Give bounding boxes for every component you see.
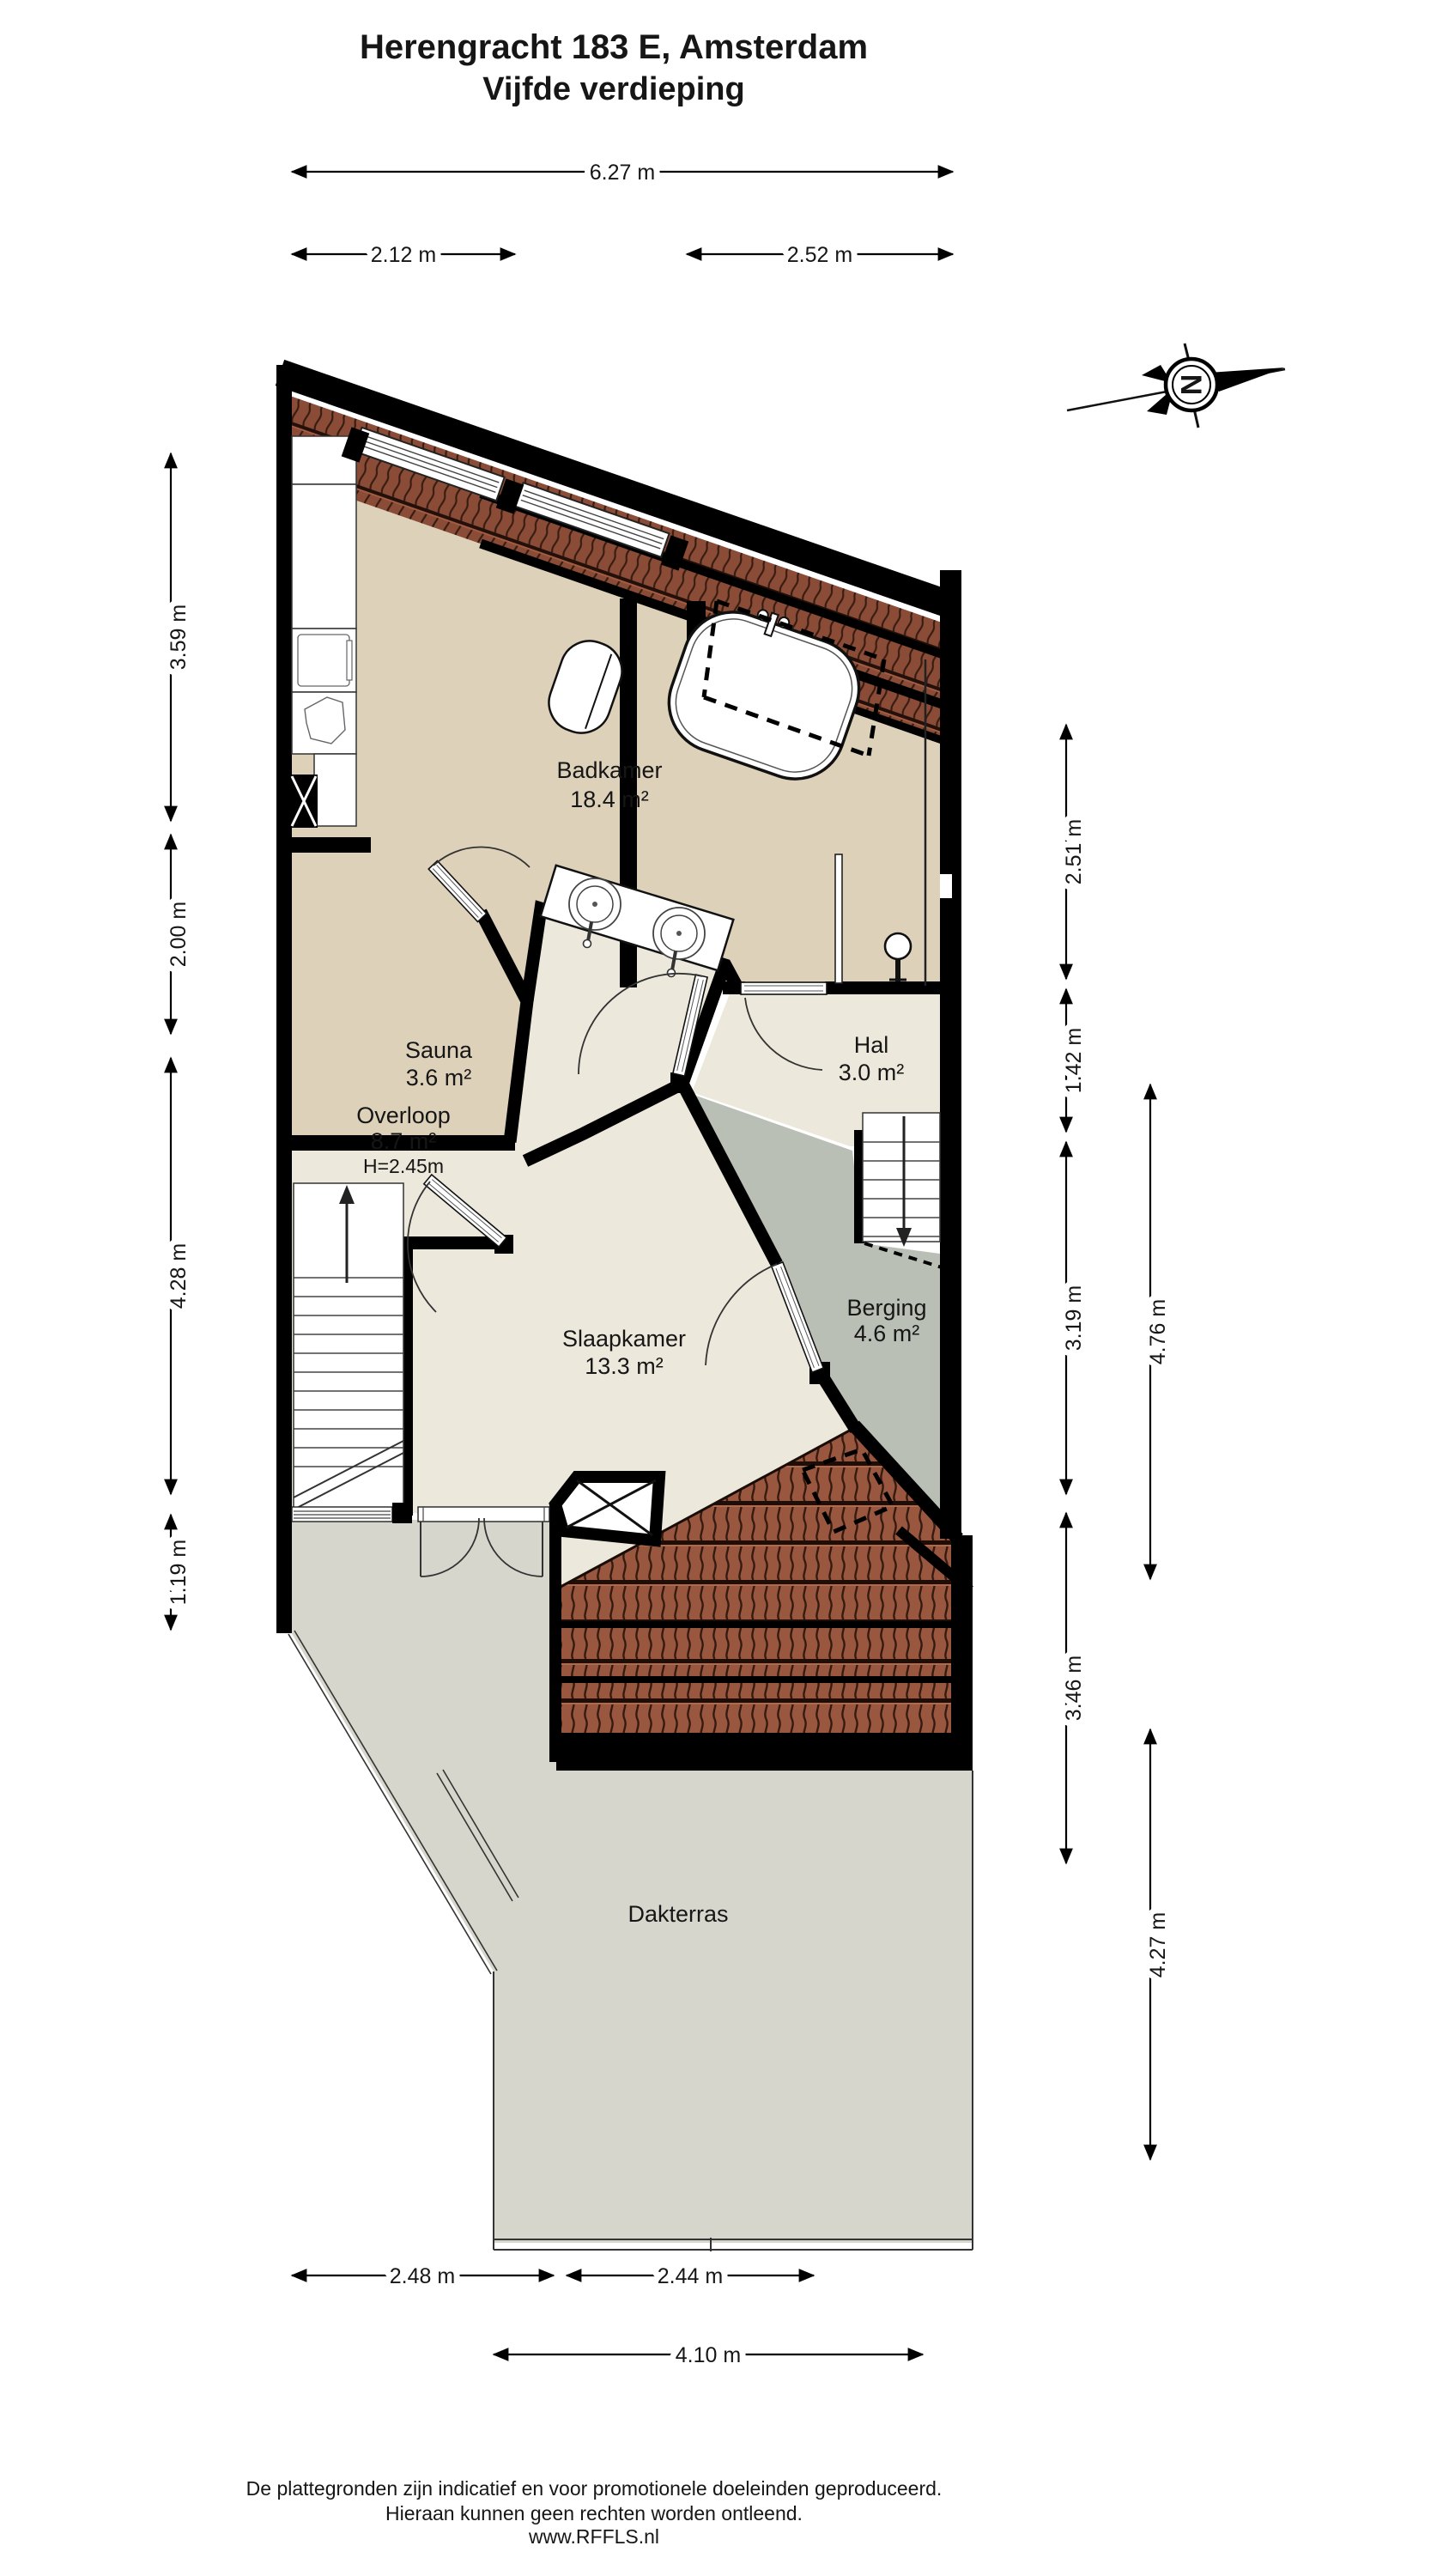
wall-slaapkamer-terrace — [549, 1503, 561, 1762]
page-title: Herengracht 183 E, Amsterdam — [360, 28, 868, 66]
label-sauna-area: 3.6 m² — [406, 1065, 472, 1091]
footer-line3: www.RFFLS.nl — [528, 2525, 659, 2548]
footer-line2: Hieraan kunnen geen rechten worden ontle… — [385, 2502, 803, 2524]
svg-text:4.10 m: 4.10 m — [676, 2343, 741, 2367]
dim-left-column: 3.59 m 2.00 m 4.28 m 1.19 m — [167, 453, 191, 1630]
wall-niche — [940, 874, 952, 898]
page-subtitle: Vijfde verdieping — [482, 71, 744, 107]
stairs-up — [294, 1183, 403, 1510]
terrace-window — [292, 1507, 392, 1522]
svg-text:2.51 m: 2.51 m — [1062, 819, 1086, 884]
dim-right-inner-column: 2.51 m 1.42 m 3.19 m 3.46 m — [1062, 725, 1086, 1863]
wall-bottom — [556, 1733, 973, 1771]
header: Herengracht 183 E, Amsterdam Vijfde verd… — [360, 28, 868, 107]
svg-text:4.27 m: 4.27 m — [1146, 1912, 1170, 1978]
svg-text:4.76 m: 4.76 m — [1146, 1299, 1170, 1364]
footer: De plattegronden zijn indicatief en voor… — [246, 2477, 943, 2548]
glass-partition — [835, 854, 842, 983]
svg-text:3.19 m: 3.19 m — [1062, 1285, 1086, 1351]
wall-right — [940, 570, 961, 1539]
compass-arrow-east — [1209, 368, 1285, 392]
dim-bottom-total: 4.10 m — [494, 2343, 923, 2367]
svg-text:1.42 m: 1.42 m — [1062, 1028, 1086, 1093]
label-sauna: Sauna — [405, 1037, 473, 1063]
label-slaapkamer-area: 13.3 m² — [585, 1353, 664, 1379]
label-badkamer-area: 18.4 m² — [570, 787, 649, 812]
svg-text:2.48 m: 2.48 m — [390, 2264, 455, 2288]
svg-text:4.28 m: 4.28 m — [167, 1243, 191, 1309]
stairs-down — [863, 1113, 942, 1267]
label-overloop-area: 8.7 m² — [371, 1128, 437, 1154]
compass-letter: N — [1174, 374, 1207, 396]
dim-right-outer-column: 4.76 m 4.27 m — [1146, 1084, 1170, 2160]
svg-text:1.19 m: 1.19 m — [167, 1540, 191, 1605]
dim-top-right: 2.52 m — [687, 243, 953, 267]
footer-line1: De plattegronden zijn indicatief en voor… — [246, 2477, 943, 2500]
label-berging: Berging — [846, 1295, 926, 1321]
label-berging-area: 4.6 m² — [854, 1321, 920, 1346]
label-overloop-height: H=2.45m — [363, 1155, 444, 1177]
dim-bottom-right: 2.44 m — [567, 2264, 814, 2288]
svg-text:3.59 m: 3.59 m — [167, 605, 191, 670]
label-dakterras: Dakterras — [627, 1901, 728, 1927]
svg-text:2.44 m: 2.44 m — [658, 2264, 723, 2288]
compass: N — [1067, 343, 1285, 428]
bay-window — [555, 1477, 659, 1540]
label-hal: Hal — [854, 1032, 889, 1058]
label-overloop: Overloop — [356, 1103, 451, 1128]
svg-text:2.00 m: 2.00 m — [167, 902, 191, 967]
svg-text:3.46 m: 3.46 m — [1062, 1656, 1086, 1721]
label-slaapkamer: Slaapkamer — [562, 1326, 686, 1352]
svg-text:6.27 m: 6.27 m — [590, 161, 655, 185]
dim-top-left: 2.12 m — [292, 243, 515, 267]
floor-plan-canvas: Badkamer 18.4 m² Sauna 3.6 m² Hal 3.0 m²… — [0, 0, 1449, 2576]
label-hal-area: 3.0 m² — [839, 1060, 905, 1085]
svg-text:2.12 m: 2.12 m — [371, 243, 436, 267]
dim-bottom-left: 2.48 m — [292, 2264, 554, 2288]
door-leaf-hal — [741, 982, 827, 994]
label-badkamer: Badkamer — [556, 757, 662, 783]
wall-left — [276, 365, 292, 1633]
dim-top-total: 6.27 m — [292, 161, 953, 185]
svg-text:2.52 m: 2.52 m — [787, 243, 852, 267]
